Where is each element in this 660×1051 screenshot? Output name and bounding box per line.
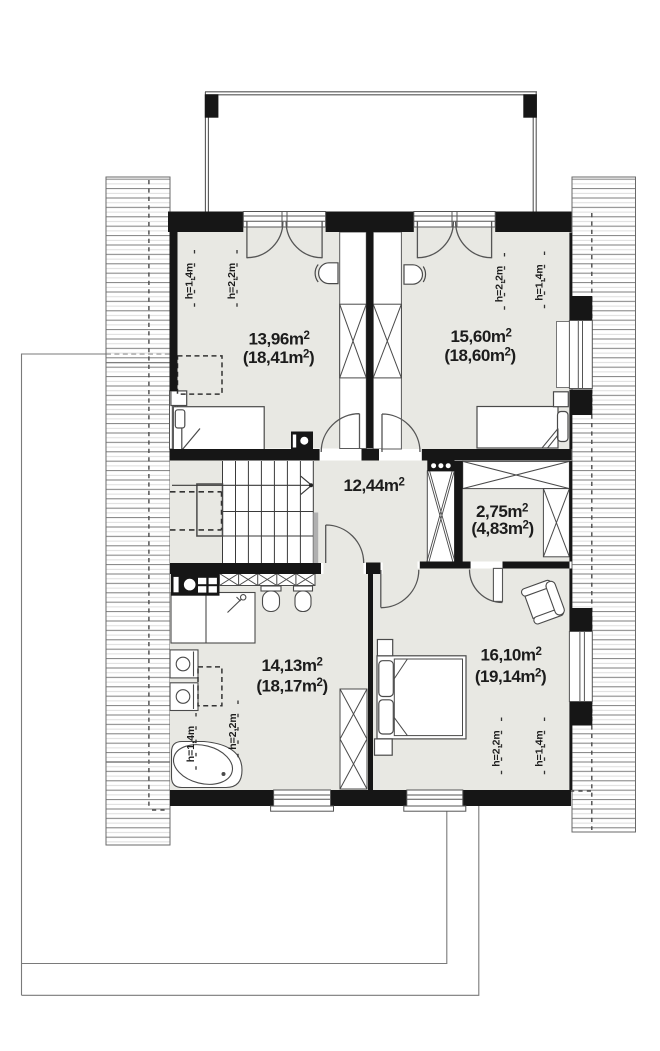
svg-text:13,96m2: 13,96m2	[249, 330, 310, 349]
svg-text:16,10m2: 16,10m2	[481, 645, 542, 664]
svg-text:h=2,2m: h=2,2m	[491, 730, 503, 766]
svg-text:h=2,2m: h=2,2m	[226, 263, 238, 299]
svg-text:h=1,4m: h=1,4m	[534, 264, 546, 300]
svg-text:h=1,4m: h=1,4m	[185, 726, 197, 762]
svg-text:14,13m2: 14,13m2	[262, 656, 323, 675]
svg-text:15,60m2: 15,60m2	[451, 327, 512, 346]
svg-text:h=2,2m: h=2,2m	[494, 266, 506, 302]
svg-text:12,44m2: 12,44m2	[344, 476, 405, 495]
svg-text:h=1,4m: h=1,4m	[184, 263, 196, 299]
svg-text:h=2,2m: h=2,2m	[227, 713, 239, 749]
svg-text:h=1,4m: h=1,4m	[534, 730, 546, 766]
